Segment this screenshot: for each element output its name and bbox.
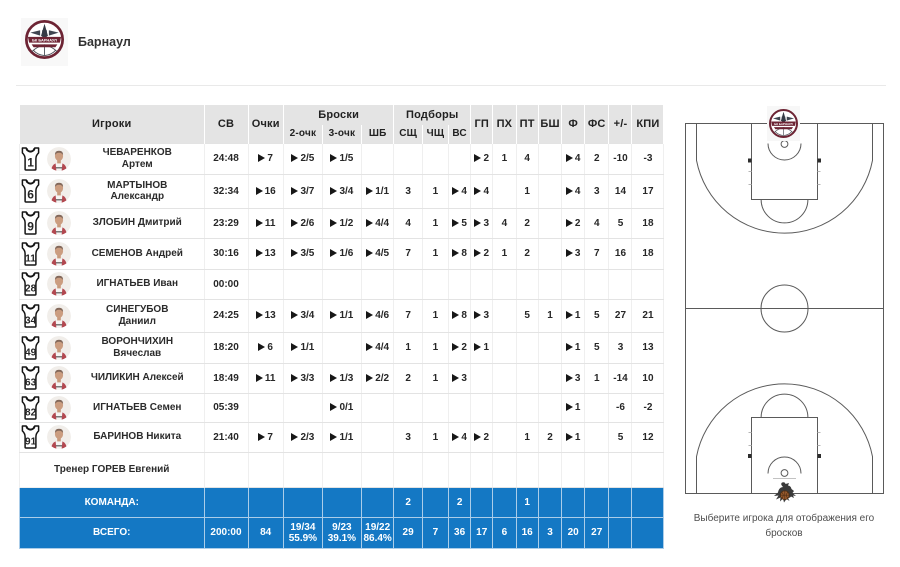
svg-text:1: 1	[27, 155, 34, 169]
svg-text:БК БАРНАУЛ: БК БАРНАУЛ	[32, 37, 57, 42]
svg-text:БК БАРНАУЛ: БК БАРНАУЛ	[774, 122, 792, 126]
svg-text:28: 28	[25, 284, 37, 295]
svg-text:91: 91	[25, 437, 37, 448]
svg-text:49: 49	[25, 347, 37, 358]
svg-text:63: 63	[25, 378, 37, 389]
svg-text:9: 9	[27, 220, 34, 234]
svg-text:34: 34	[25, 315, 37, 326]
svg-text:11: 11	[25, 253, 36, 264]
svg-text:6: 6	[27, 188, 34, 202]
svg-text:82: 82	[25, 407, 37, 418]
